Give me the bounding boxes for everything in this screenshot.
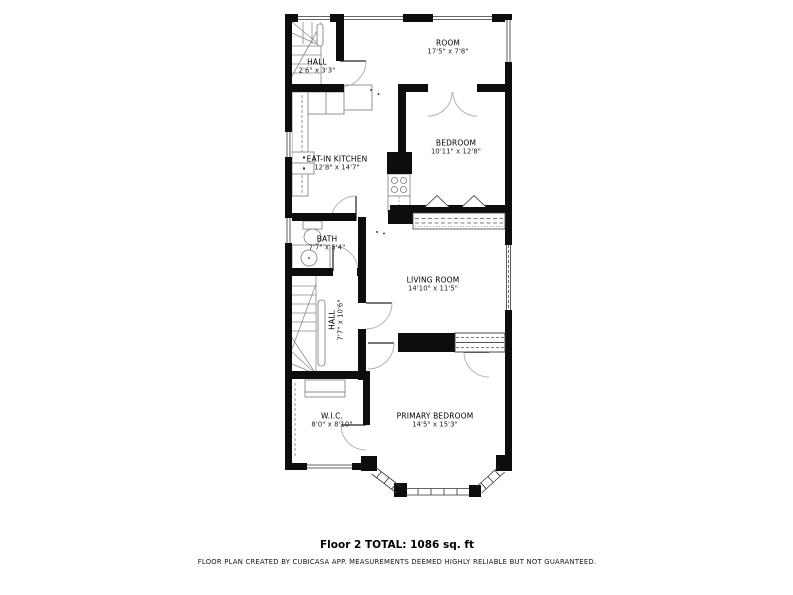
room-label-hall-upper: HALL 2'6" x 3'3" — [299, 57, 336, 74]
doors — [331, 61, 489, 450]
room-dims: 14'5" x 15'3" — [397, 420, 474, 428]
room-name: W.I.C. — [311, 411, 352, 420]
room-label-room: ROOM 17'5" x 7'8" — [427, 38, 468, 55]
window-top-hall — [298, 14, 330, 22]
room-dims: 12'8" x 14'7" — [307, 163, 368, 171]
room-name: BEDROOM — [431, 138, 481, 147]
room-label-wic: W.I.C. 8'0" x 8'10" — [311, 411, 352, 428]
room-name: BATH — [309, 234, 346, 243]
room-label-bath: BATH 7'7" x 5'4" — [309, 234, 346, 251]
room-dims: 10'11" x 12'8" — [431, 147, 481, 155]
room-label-bedroom: BEDROOM 10'11" x 12'8" — [431, 138, 481, 155]
door-upper-hall — [340, 61, 366, 87]
door-living-closet — [464, 352, 489, 377]
floor-plan-page: HALL 2'6" x 3'3" ROOM 17'5" x 7'8" EAT-I… — [0, 0, 793, 595]
lower-stairs — [292, 276, 325, 376]
window-top-room-left — [344, 14, 403, 22]
room-dims: 7'7" x 10'6" — [336, 299, 344, 340]
window-left-bath — [285, 218, 292, 243]
room-label-primary-bedroom: PRIMARY BEDROOM 14'5" x 15'3" — [397, 411, 474, 428]
room-name: PRIMARY BEDROOM — [397, 411, 474, 420]
window-right-living — [505, 245, 512, 310]
window-top-room-right — [433, 14, 492, 22]
room-name: EAT-IN KITCHEN — [307, 154, 368, 163]
kitchen-counters — [292, 85, 372, 196]
door-hall-living — [366, 303, 392, 329]
door-primary-bedroom — [368, 343, 394, 369]
floor-total-text: Floor 2 TOTAL: 1086 sq. ft — [320, 539, 474, 551]
room-name: LIVING ROOM — [407, 275, 460, 284]
bay-windows — [372, 466, 505, 495]
room-dims: 2'6" x 3'3" — [299, 66, 336, 74]
living-room-closet — [455, 333, 505, 352]
room-name: HALL — [327, 299, 336, 340]
room-dims: 14'10" x 11'5" — [407, 284, 460, 292]
window-right-room — [505, 20, 512, 62]
door-french-bedroom — [428, 92, 477, 116]
window-left-kitchen — [285, 132, 292, 157]
structure-band — [413, 213, 505, 229]
room-dims: 8'0" x 8'10" — [311, 420, 352, 428]
room-label-hall-lower: HALL 7'7" x 10'6" — [327, 299, 344, 340]
bay-window-bottom — [406, 489, 469, 496]
room-name: HALL — [299, 57, 336, 66]
door-wic — [341, 425, 366, 450]
room-name: ROOM — [427, 38, 468, 47]
disclaimer-text: FLOOR PLAN CREATED BY CUBICASA APP. MEAS… — [198, 558, 597, 566]
floor-plan-drawing — [0, 0, 793, 595]
room-dims: 7'7" x 5'4" — [309, 243, 346, 251]
room-dims: 17'5" x 7'8" — [427, 47, 468, 55]
upper-stairs — [292, 22, 323, 84]
window-wic — [307, 463, 352, 470]
room-label-kitchen: EAT-IN KITCHEN 12'8" x 14'7" — [307, 154, 368, 171]
room-label-living-room: LIVING ROOM 14'10" x 11'5" — [407, 275, 460, 292]
plan-specks — [370, 89, 385, 235]
